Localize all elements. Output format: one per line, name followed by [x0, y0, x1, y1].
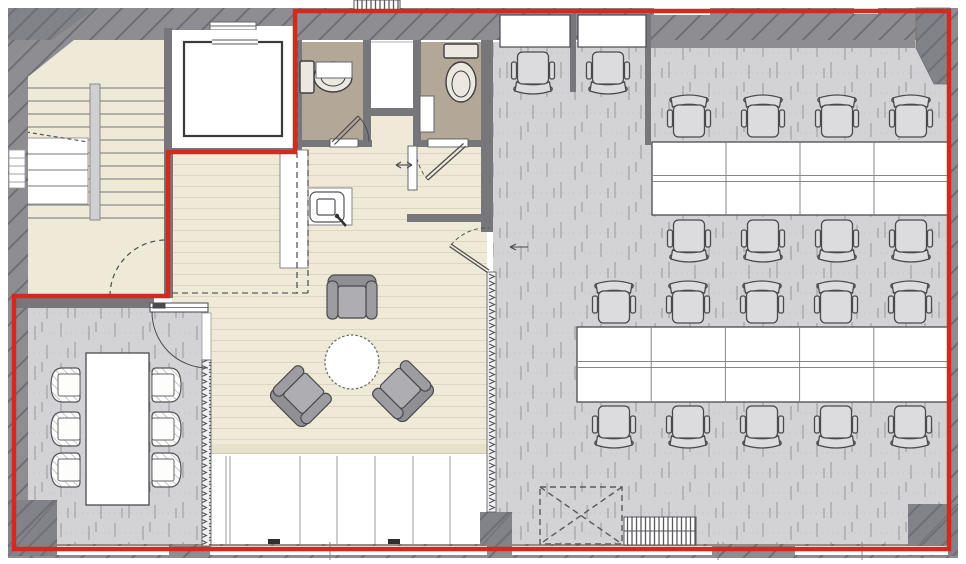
office-chair [815, 406, 858, 448]
stair-lower-flight [24, 138, 88, 204]
door-closer [153, 303, 165, 308]
glass-facade [210, 454, 487, 546]
south-glazing [210, 444, 487, 546]
office-chair [741, 406, 784, 448]
meeting-table [86, 353, 149, 505]
hall-office-wall [481, 40, 493, 232]
office-chair [815, 281, 858, 323]
meeting-chair [152, 412, 181, 446]
office-north-wall-strip [648, 40, 915, 48]
office-chair [742, 95, 785, 137]
meeting-chair [51, 453, 80, 487]
office-chair [816, 220, 859, 262]
office-chair [741, 281, 784, 323]
meeting-chair [51, 412, 80, 446]
lounge-armchair [327, 275, 377, 319]
meeting-glass-wall [202, 360, 211, 546]
office-chair [890, 95, 933, 137]
stair-stringer [90, 84, 100, 220]
office-chair [593, 406, 636, 448]
office-chair [668, 95, 711, 137]
meeting-chair [51, 368, 80, 402]
office-chair [593, 281, 636, 323]
office-chair [668, 220, 711, 262]
office-chair [890, 220, 933, 262]
door-handle [388, 539, 400, 544]
meeting-chair [152, 368, 181, 402]
shaft-floor [370, 42, 415, 112]
office-chair [667, 281, 710, 323]
floor-plan-page [0, 0, 966, 564]
office-chair [587, 52, 630, 94]
elevator-car [184, 42, 282, 136]
hall-floor-patch [368, 115, 415, 146]
elevator [172, 30, 294, 148]
wall-desk [500, 15, 570, 47]
hall-door-slab [408, 146, 417, 190]
floor-plan-drawing [0, 0, 966, 564]
lounge-office-glass-wall [487, 272, 496, 512]
office-chair [889, 406, 932, 448]
office-chair [742, 220, 785, 262]
office-chair [816, 95, 859, 137]
desk-bank [577, 327, 948, 402]
office-partition [570, 14, 576, 92]
toilet-right [444, 44, 478, 102]
meeting-chair [152, 453, 181, 487]
wall-desk [578, 15, 646, 47]
office-chair [667, 406, 710, 448]
sink-left-wc [316, 62, 352, 78]
office-floor [493, 42, 950, 546]
office-chair [889, 281, 932, 323]
door-handle [268, 539, 280, 544]
office-chair [512, 52, 555, 94]
sink-right-wc [420, 96, 434, 132]
round-table [325, 335, 379, 389]
